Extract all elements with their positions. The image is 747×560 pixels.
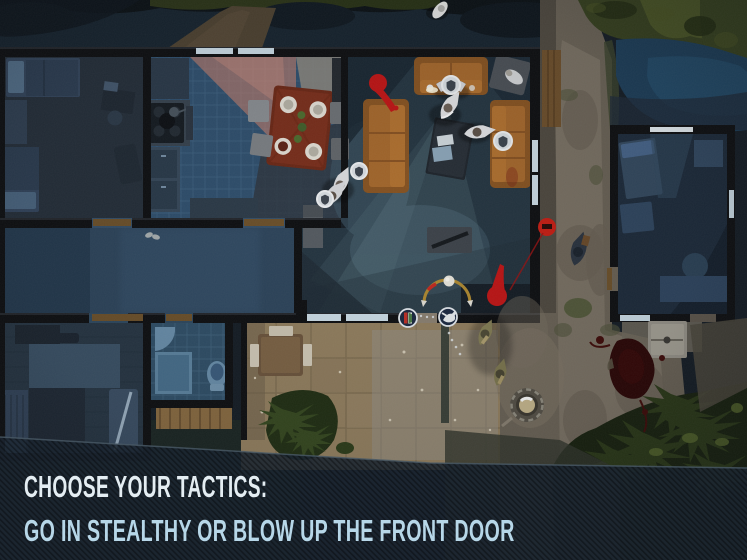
svg-text:GO IN STEALTHY OR BLOW UP THE: GO IN STEALTHY OR BLOW UP THE FRONT DOOR (24, 515, 515, 548)
svg-text:CHOOSE YOUR TACTICS:: CHOOSE YOUR TACTICS: (24, 471, 268, 505)
